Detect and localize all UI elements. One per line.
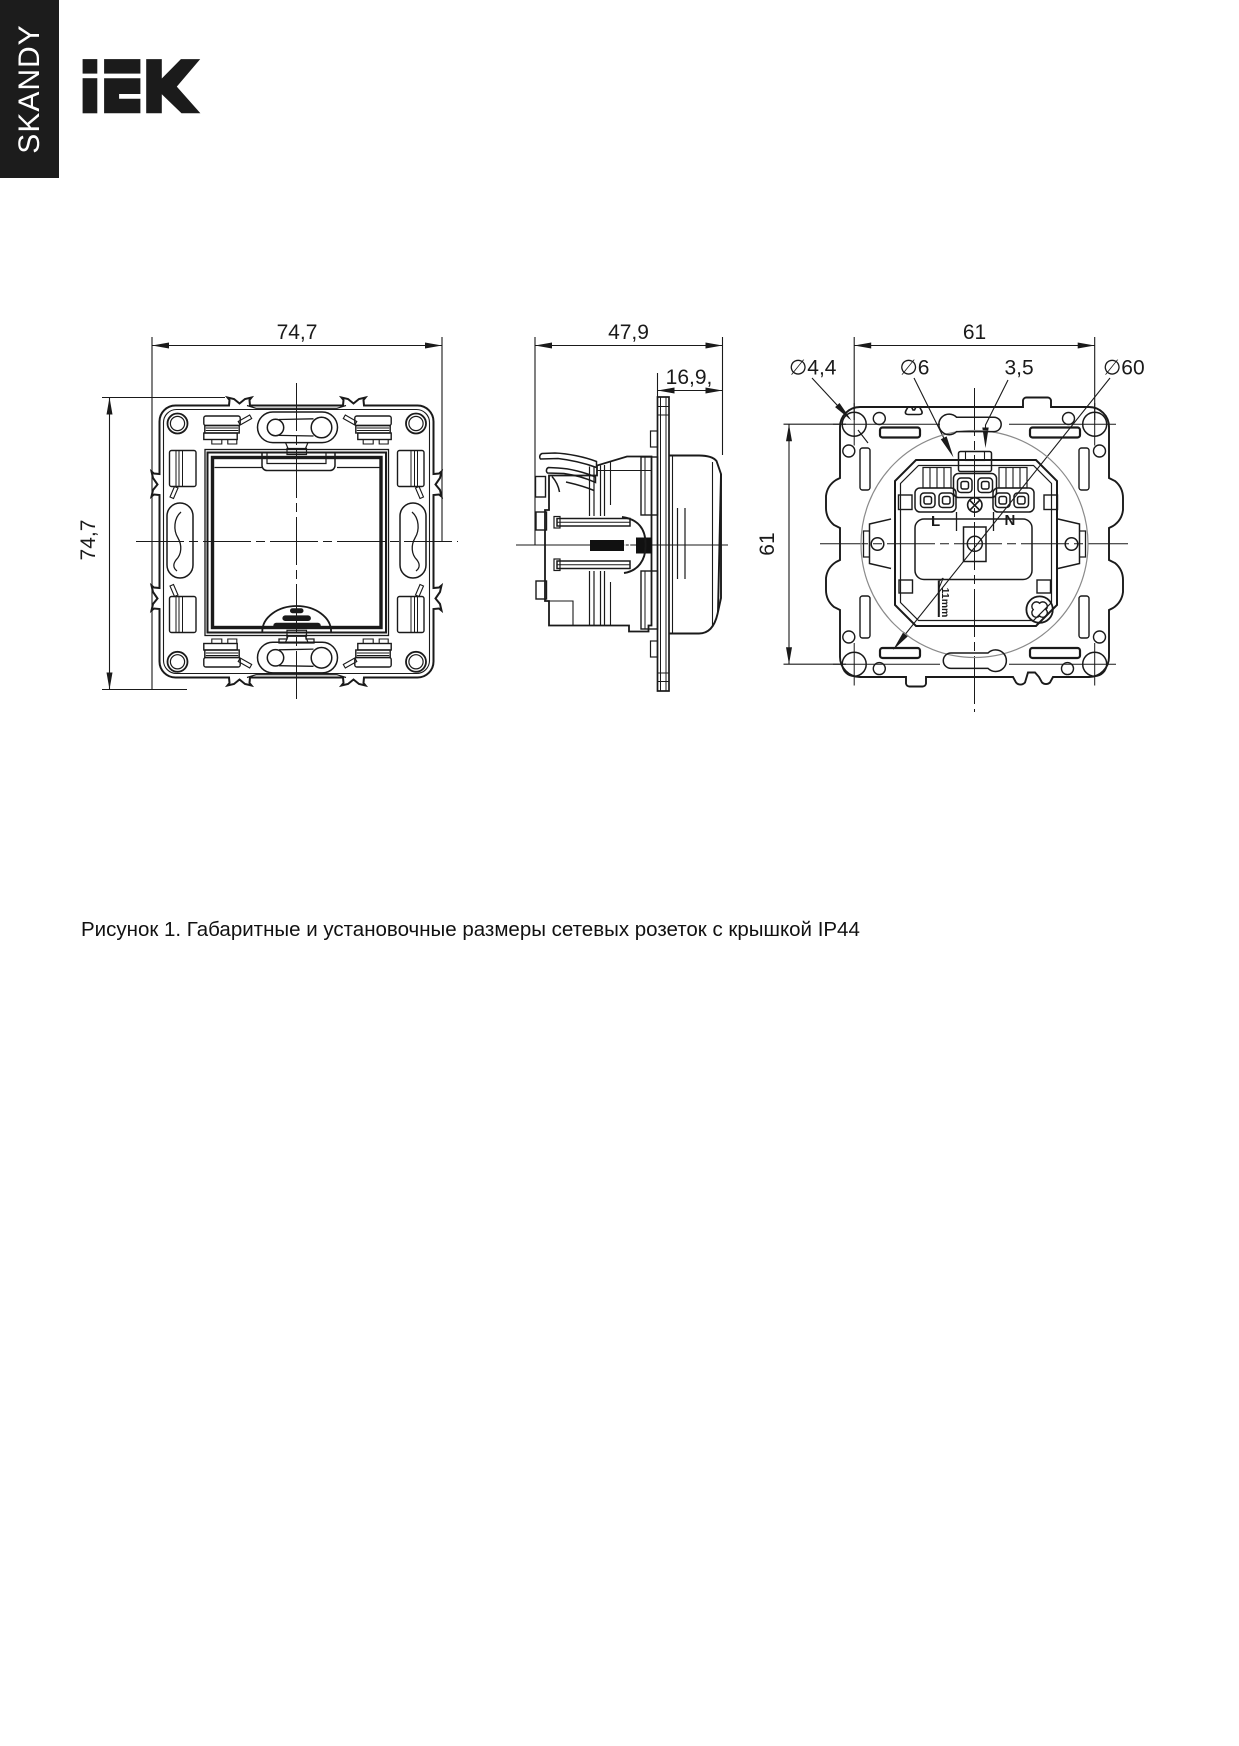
svg-text:47,9: 47,9	[608, 321, 649, 344]
svg-text:L: L	[931, 513, 940, 530]
svg-text:11mm: 11mm	[939, 588, 951, 618]
svg-text:∅4,4: ∅4,4	[789, 357, 837, 380]
svg-text:16,9,: 16,9,	[666, 366, 713, 389]
svg-text:61: 61	[756, 532, 779, 555]
svg-text:3,5: 3,5	[1005, 357, 1034, 380]
svg-text:∅60: ∅60	[1103, 357, 1145, 380]
svg-text:74,7: 74,7	[277, 321, 318, 344]
svg-text:∅6: ∅6	[900, 357, 930, 380]
svg-text:N: N	[1005, 512, 1016, 529]
svg-text:74,7: 74,7	[77, 520, 100, 561]
svg-text:61: 61	[963, 321, 986, 344]
